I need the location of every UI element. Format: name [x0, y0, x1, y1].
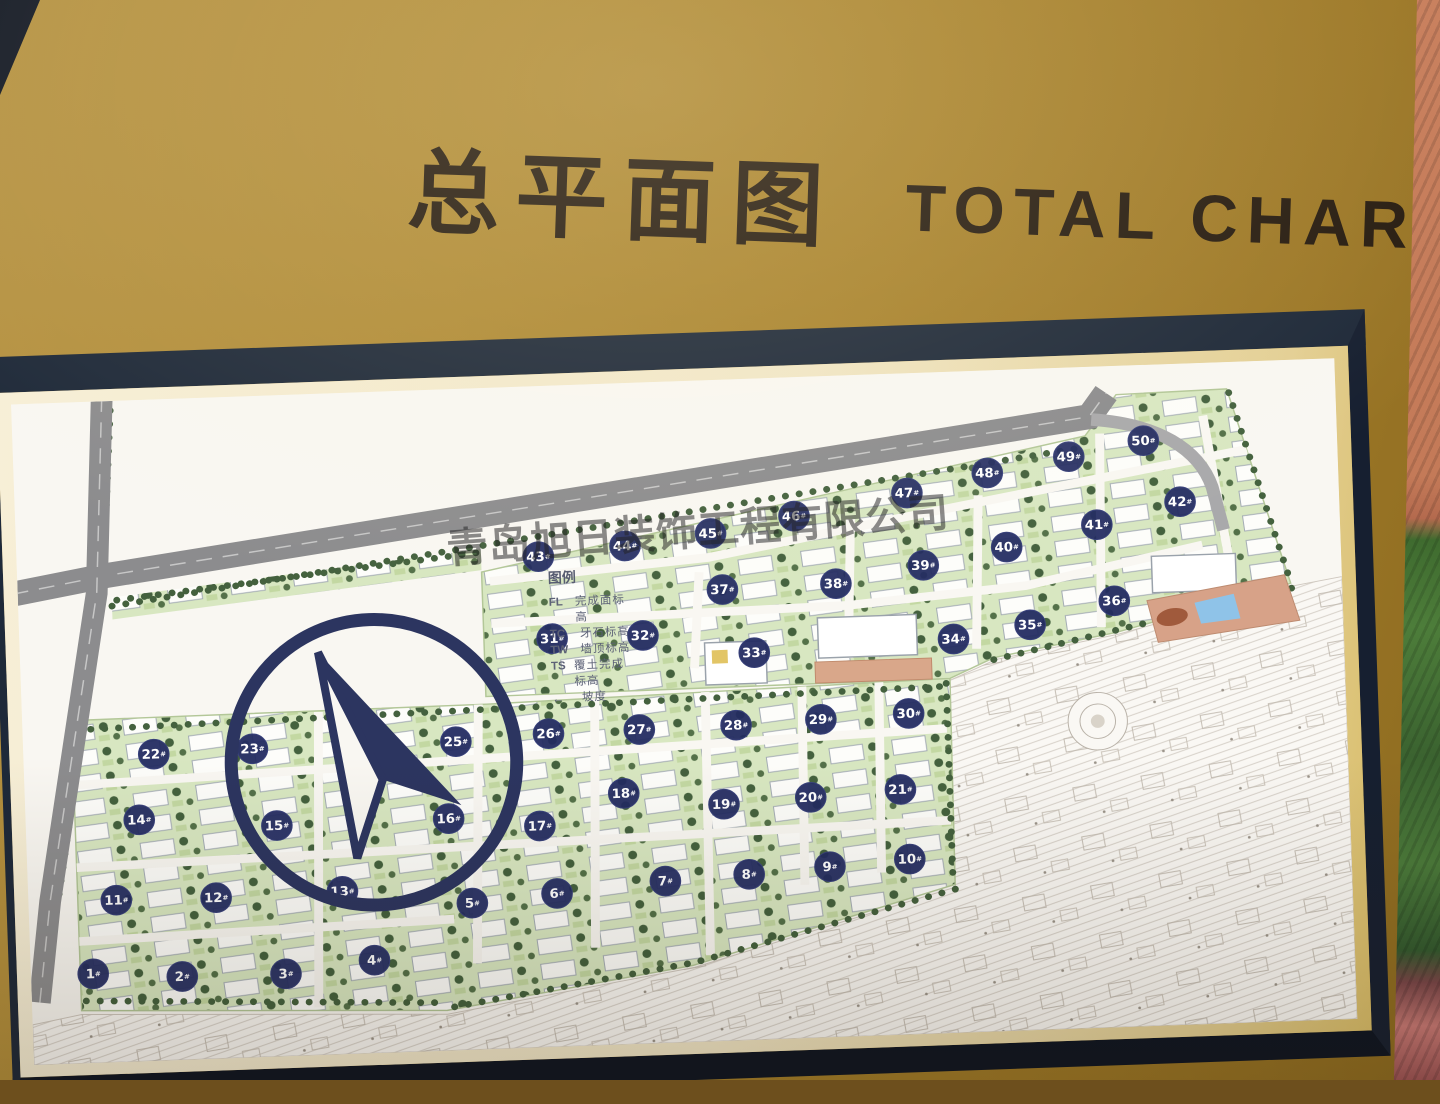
legend-label: 坡度 [582, 689, 608, 707]
corner-shadow [0, 0, 40, 95]
building-marker-2: 2# [166, 961, 198, 992]
compass-north-arrow-icon [206, 594, 542, 930]
legend-code: TW [550, 642, 581, 659]
legend-body: 图例 FL完成面标高TC牙石标高TW墙顶标高TS覆土完成标高←坡度 [548, 565, 633, 708]
building-marker-28: 28# [720, 710, 752, 741]
map-legend: 图例 FL完成面标高TC牙石标高TW墙顶标高TS覆土完成标高←坡度 [205, 565, 640, 930]
commercial-building [817, 614, 917, 658]
building-marker-33: 33# [738, 637, 770, 668]
building-marker-20: 20# [795, 782, 827, 813]
building-marker-32: 32# [627, 620, 659, 651]
slope-arrow-icon: ← [552, 689, 583, 707]
building-marker-22: 22# [138, 739, 170, 770]
board-title: 总平面图 TOTAL CHART [406, 118, 1350, 284]
building-marker-39: 39# [907, 550, 939, 581]
legend-label: 完成面标高 [575, 592, 631, 626]
building-marker-35: 35# [1014, 609, 1046, 640]
title-chinese: 总平面图 [406, 118, 842, 266]
legend-item: FL完成面标高 [548, 592, 630, 627]
building-marker-14: 14# [123, 804, 155, 835]
building-marker-48: 48# [971, 458, 1003, 489]
building-marker-4: 4# [359, 945, 391, 976]
map-frame: 1#2#3#4#5#6#7#8#9#10#11#12#13#14#15#16#1… [0, 309, 1391, 1104]
building-marker-9: 9# [814, 851, 846, 882]
building-marker-41: 41# [1081, 509, 1113, 540]
building-marker-50: 50# [1128, 425, 1160, 456]
map-mat: 1#2#3#4#5#6#7#8#9#10#11#12#13#14#15#16#1… [0, 346, 1372, 1078]
building-marker-49: 49# [1053, 441, 1085, 472]
building-marker-36: 36# [1099, 585, 1131, 616]
building-marker-29: 29# [805, 704, 837, 735]
building-marker-3: 3# [270, 958, 302, 989]
legend-label: 墙顶标高 [580, 640, 631, 658]
kindergarten-yard [712, 650, 728, 664]
legend-title: 图例 [548, 565, 629, 588]
building-marker-19: 19# [708, 789, 740, 820]
legend-code: FL [548, 594, 575, 627]
legend-code: TS [551, 658, 575, 691]
building-marker-11: 11# [101, 885, 133, 916]
legend-rows: FL完成面标高TC牙石标高TW墙顶标高TS覆土完成标高←坡度 [548, 592, 632, 708]
building-marker-37: 37# [707, 574, 739, 605]
legend-item: TS覆土完成标高 [551, 656, 633, 691]
building-marker-34: 34# [938, 624, 970, 655]
building-marker-10: 10# [894, 844, 926, 875]
building-marker-21: 21# [885, 774, 917, 805]
legend-item: ←坡度 [552, 688, 633, 708]
building-marker-38: 38# [820, 568, 852, 599]
building-marker-40: 40# [991, 532, 1023, 563]
commercial-parking [815, 658, 932, 683]
building-marker-30: 30# [893, 698, 925, 729]
building-marker-8: 8# [733, 859, 765, 890]
gold-sign-board: 总平面图 TOTAL CHART [0, 0, 1440, 1080]
legend-label: 覆土完成标高 [574, 656, 633, 690]
building-marker-7: 7# [650, 866, 682, 897]
building-marker-42: 42# [1164, 486, 1196, 517]
title-english: TOTAL CHART [904, 159, 1440, 265]
site-plan-map: 1#2#3#4#5#6#7#8#9#10#11#12#13#14#15#16#1… [11, 358, 1357, 1065]
building-marker-1: 1# [77, 958, 109, 989]
legend-code: TC [550, 626, 581, 643]
legend-label: 牙石标高 [580, 624, 631, 642]
